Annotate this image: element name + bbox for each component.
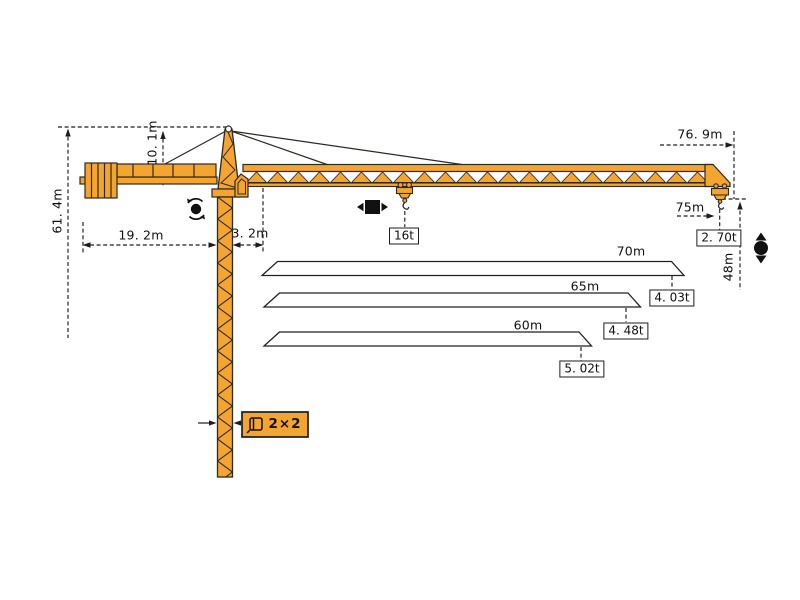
load-bar-70m (262, 262, 684, 276)
tip-load-box-65m: 4. 48t (603, 323, 648, 340)
counterweight (85, 163, 117, 198)
hook-height-label: 48m (721, 253, 736, 282)
hook-tip-icon (718, 200, 722, 204)
trolley-travel-icon (357, 200, 388, 214)
apex-pin (226, 126, 232, 132)
head-height-label: 10. 1m (145, 120, 160, 165)
crane-diagram: 61. 4m 10. 1m 19. 2m 3. 2m 76. 9m 75m 48… (0, 0, 800, 600)
tip-load-box-70m: 4. 03t (649, 290, 694, 307)
load-bar-65m (264, 293, 641, 307)
max-radius-label: 76. 9m (677, 127, 722, 142)
tip-radius-label: 75m (676, 200, 705, 215)
jib (243, 165, 730, 187)
tip-load-box-60m: 5. 02t (559, 361, 604, 378)
hook-mid-icon (403, 199, 407, 203)
counter-jib-length-label: 19. 2m (118, 228, 163, 243)
tip-load-box-75m: 2. 70t (696, 230, 741, 247)
slew-rotation-icon (187, 199, 205, 220)
hoist-up-down-icon (754, 233, 768, 264)
bar-length-label-65m: 65m (571, 279, 600, 294)
load-bar-60m (264, 332, 592, 346)
bar-length-label-70m: 70m (617, 244, 646, 259)
tower-mast (218, 197, 233, 477)
max-load-box: 16t (389, 228, 419, 245)
mast-section-label: 2×2 (268, 416, 301, 432)
jib-root-offset-label: 3. 2m (231, 226, 268, 241)
tie-rods (165, 131, 486, 168)
trolley-hook-tip (712, 184, 729, 209)
bar-length-label-60m: 60m (514, 318, 543, 333)
jib-tip (705, 165, 730, 187)
total-height-label: 61. 4m (50, 188, 65, 233)
